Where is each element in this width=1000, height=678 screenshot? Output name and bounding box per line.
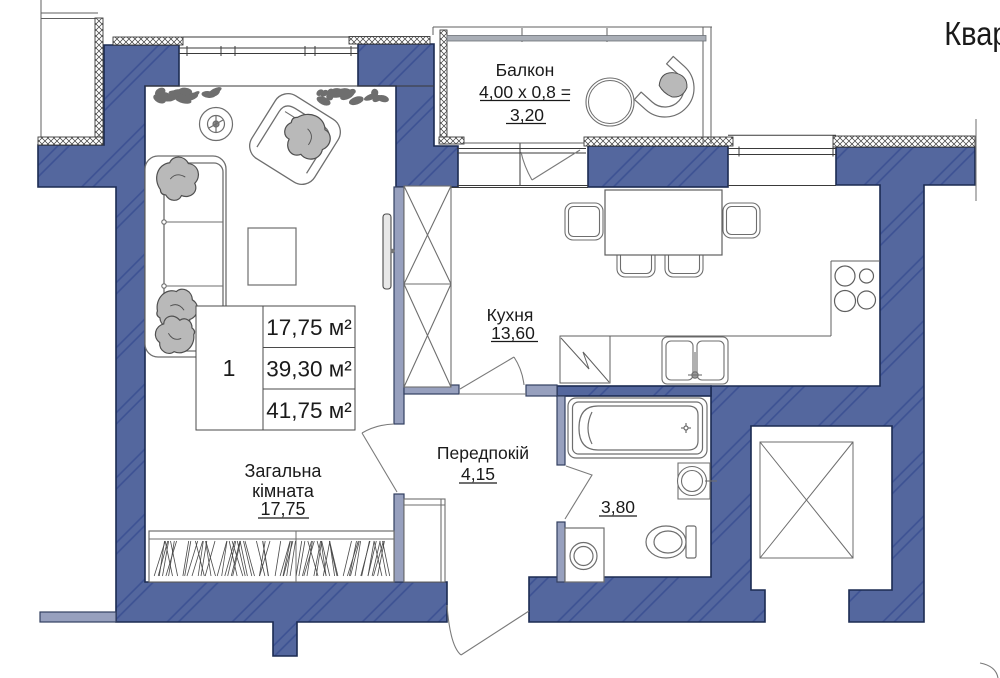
svg-text:41,75 м²: 41,75 м² <box>266 398 352 423</box>
svg-text:3,20: 3,20 <box>510 105 544 125</box>
svg-text:17,75 м²: 17,75 м² <box>266 315 352 340</box>
svg-text:Квартира: Квартира <box>944 15 1000 52</box>
svg-text:3,80: 3,80 <box>601 497 635 517</box>
svg-text:кімната: кімната <box>252 481 315 501</box>
svg-text:39,30 м²: 39,30 м² <box>266 357 352 382</box>
svg-text:4,00 х 0,8 =: 4,00 х 0,8 = <box>479 82 571 102</box>
svg-text:4,15: 4,15 <box>461 464 495 484</box>
svg-text:13,60: 13,60 <box>491 323 535 343</box>
svg-text:Загальна: Загальна <box>245 461 323 481</box>
svg-text:Балкон: Балкон <box>496 60 555 80</box>
svg-text:17,75: 17,75 <box>260 499 305 519</box>
svg-text:Кухня: Кухня <box>487 305 534 325</box>
svg-text:1: 1 <box>223 355 236 381</box>
svg-text:Передпокій: Передпокій <box>437 443 529 463</box>
